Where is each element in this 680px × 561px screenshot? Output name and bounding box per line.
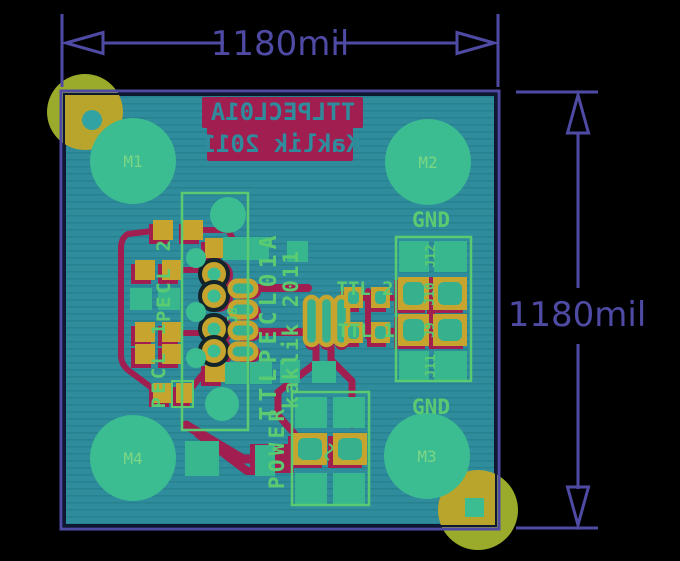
pad-inner <box>438 319 462 341</box>
pad-inner <box>298 438 322 460</box>
label-m1: M1 <box>123 152 142 171</box>
stadium-pad <box>305 297 318 345</box>
stadium-pad <box>230 344 256 359</box>
via <box>186 248 206 268</box>
drill-hole-bottom-right <box>465 498 484 517</box>
silk-gnd-top: GND <box>412 208 450 232</box>
pad-inner <box>338 438 362 460</box>
dim-right-label: 1180mil <box>508 295 647 335</box>
stadium-pad <box>230 323 256 338</box>
stadium-pad <box>320 297 333 345</box>
pcb-render-canvas: TTLPECL01A Kaklik 2011 <box>0 0 680 561</box>
smd-pad <box>135 260 155 280</box>
label-m4: M4 <box>123 449 142 468</box>
silk-j10: J10 <box>423 282 438 306</box>
smd-pad <box>176 383 194 403</box>
via <box>186 348 206 368</box>
pad <box>333 473 365 504</box>
dim-top-label: 1180mil <box>211 24 350 64</box>
label-m2: M2 <box>418 153 437 172</box>
silk-j12: J12 <box>424 244 439 267</box>
silk-j9: J9 <box>423 322 438 338</box>
pad <box>295 473 327 504</box>
via <box>210 197 246 233</box>
via <box>205 387 239 421</box>
silk-gnd-bottom: GND <box>412 395 450 419</box>
mirrored-title-text: TTLPECL01A <box>210 98 355 126</box>
pad <box>333 397 365 428</box>
pad-inner <box>403 282 424 305</box>
smd-pad <box>153 220 173 240</box>
silk-ttl1: TTL 1 <box>337 320 394 342</box>
bottom-silkscreen-block: TTLPECL01A Kaklik 2011 <box>202 97 363 161</box>
via <box>186 302 206 322</box>
silk-j11: J11 <box>424 354 439 378</box>
silk-j8: J8 <box>226 307 241 323</box>
mirrored-author-text: Kaklik 2011 <box>202 130 361 158</box>
silk-author: kaklik 2011 <box>279 251 303 409</box>
label-m3: M3 <box>417 447 436 466</box>
smd-pad <box>183 220 203 240</box>
th-pad <box>200 282 228 310</box>
stadium-pad <box>230 281 256 296</box>
pad-inner <box>438 282 462 305</box>
silk-power: POWER <box>265 409 289 489</box>
pad-inner <box>403 319 424 341</box>
drill-hole-top-left <box>82 110 102 130</box>
smd-pad <box>205 238 225 258</box>
silk-ttl2: TTL 2 <box>336 278 393 300</box>
